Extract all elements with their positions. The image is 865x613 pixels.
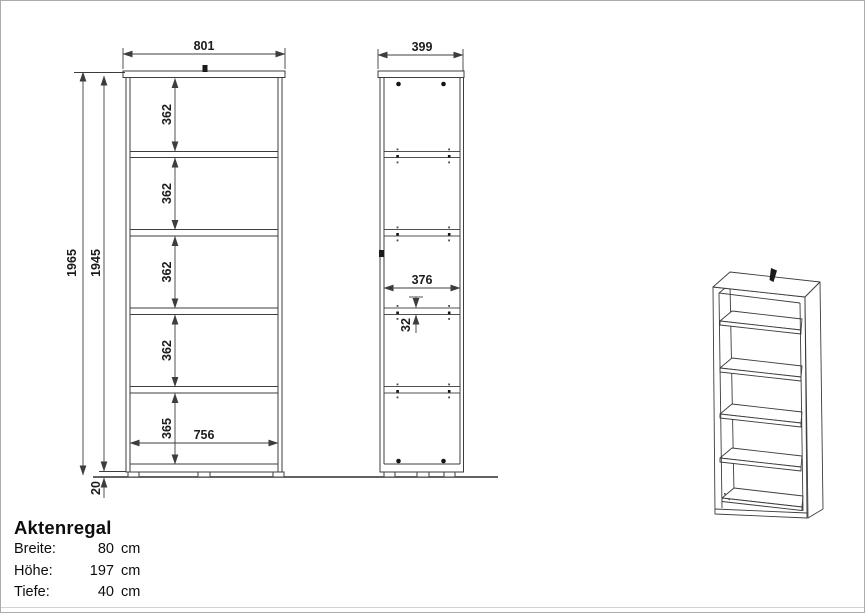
spec-label-depth: Tiefe:: [14, 582, 74, 604]
iso-right-face: [805, 282, 823, 518]
dim-label-756: 756: [194, 428, 215, 442]
front-shelf-1: [130, 152, 278, 158]
dim-label-1965: 1965: [65, 249, 79, 277]
product-title: Aktenregal: [14, 517, 140, 539]
front-foot-center: [198, 472, 210, 477]
dim-label-32: 32: [399, 318, 413, 332]
front-shelf-2: [130, 230, 278, 237]
front-foot-right: [273, 472, 284, 477]
spec-row-width: Breite: 80 cm: [14, 539, 140, 561]
front-foot-left: [128, 472, 139, 477]
spec-value-depth: 40: [74, 582, 114, 604]
dim-label-362-4: 362: [160, 340, 174, 361]
spec-unit-depth: cm: [121, 582, 140, 604]
dim-label-365: 365: [160, 418, 174, 439]
spec-unit-width: cm: [121, 539, 140, 561]
spec-value-height: 197: [74, 561, 114, 583]
dim-side-depth-399: 399: [378, 40, 463, 71]
side-body: [380, 71, 464, 472]
side-foot-front: [444, 472, 455, 477]
dim-label-20: 20: [89, 481, 103, 495]
spec-label-width: Breite:: [14, 539, 74, 561]
dim-label-362-2: 362: [160, 183, 174, 204]
dim-front-body-height-1945: 1945: [89, 76, 126, 472]
front-shelf-4: [130, 387, 278, 394]
spec-row-depth: Tiefe: 40 cm: [14, 582, 140, 604]
dim-label-801: 801: [194, 39, 215, 53]
side-foot-center: [417, 472, 429, 477]
dim-label-399: 399: [412, 40, 433, 54]
wall-bracket-marker-side: [379, 250, 384, 257]
spec-row-height: Höhe: 197 cm: [14, 561, 140, 583]
dim-label-362-3: 362: [160, 262, 174, 283]
front-view: [123, 65, 285, 477]
dim-label-376: 376: [412, 273, 433, 287]
title-block: Aktenregal Breite: 80 cm Höhe: 197 cm Ti…: [14, 517, 140, 604]
spec-label-height: Höhe:: [14, 561, 74, 583]
side-foot-back: [384, 472, 395, 477]
front-bottom-panel: [130, 464, 278, 472]
wall-mount-marker-front: [203, 65, 208, 72]
dim-front-plinth-20: 20: [89, 478, 104, 498]
page-bottom-rule: [1, 607, 864, 608]
side-top-panel: [378, 71, 464, 78]
technical-drawing-page: 801 1965 1945 20 362 362 362 362 365 756…: [0, 0, 865, 613]
dim-label-1945: 1945: [89, 249, 103, 277]
front-body: [126, 71, 282, 472]
spec-value-width: 80: [74, 539, 114, 561]
dim-label-362-1: 362: [160, 104, 174, 125]
spec-unit-height: cm: [121, 561, 140, 583]
iso-view: [713, 268, 823, 518]
front-shelf-3: [130, 308, 278, 315]
dim-front-width-801: 801: [123, 39, 285, 69]
